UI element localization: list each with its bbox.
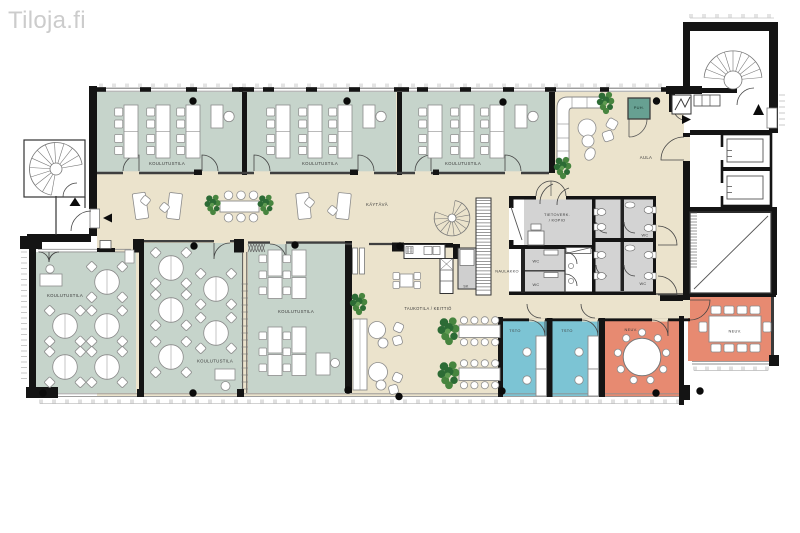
svg-text:PUH.: PUH. (634, 105, 645, 110)
svg-text:/ KOPIO: / KOPIO (549, 218, 566, 223)
svg-text:KOULUTUSTILA: KOULUTUSTILA (197, 358, 233, 363)
svg-text:TIETOVERK.: TIETOVERK. (544, 212, 570, 217)
svg-text:NAULAKKO: NAULAKKO (495, 268, 519, 273)
svg-text:WC: WC (639, 281, 646, 286)
svg-text:TSTO: TSTO (561, 328, 573, 333)
svg-text:TSTO: TSTO (509, 328, 521, 333)
svg-text:NEUV.: NEUV. (728, 329, 741, 334)
svg-text:KOULUTUSTILA: KOULUTUSTILA (302, 161, 338, 166)
svg-text:AULA: AULA (640, 155, 652, 160)
svg-text:TAUKOTILA / KEITTIÖ: TAUKOTILA / KEITTIÖ (404, 306, 451, 311)
svg-text:KOULUTUSTILA: KOULUTUSTILA (278, 309, 314, 314)
svg-text:SK: SK (463, 285, 469, 289)
svg-text:KOULUTUSTILA: KOULUTUSTILA (47, 293, 83, 298)
svg-text:KOULUTUSTILA: KOULUTUSTILA (149, 161, 185, 166)
svg-text:WC: WC (532, 282, 539, 287)
svg-text:WC: WC (532, 258, 539, 263)
svg-text:WC: WC (641, 232, 648, 237)
svg-text:Tiloja.fi: Tiloja.fi (8, 7, 86, 34)
svg-text:KOULUTUSTILA: KOULUTUSTILA (445, 161, 481, 166)
svg-text:NEUV.: NEUV. (624, 327, 637, 332)
svg-text:KÄYTÄVÄ: KÄYTÄVÄ (366, 202, 388, 207)
